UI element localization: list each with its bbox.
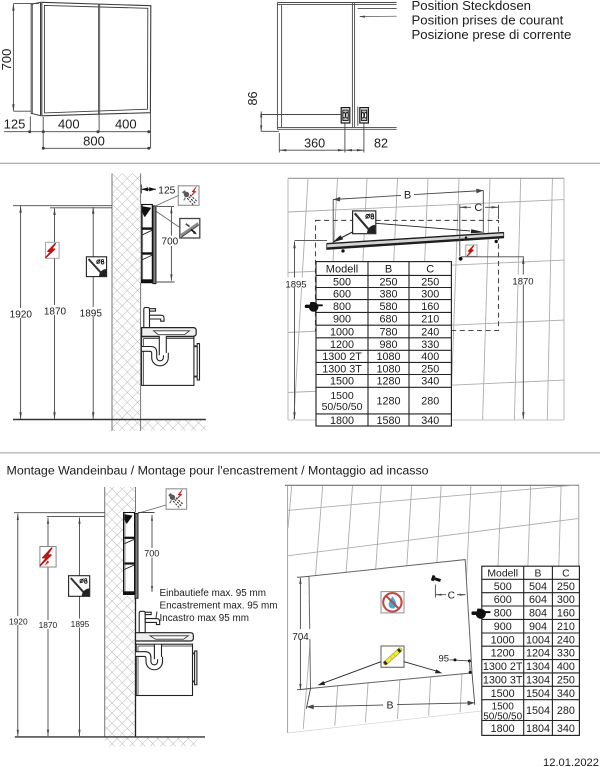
svg-text:400: 400 xyxy=(557,661,575,673)
svg-text:1920: 1920 xyxy=(10,310,33,321)
svg-text:B: B xyxy=(535,568,542,579)
svg-text:380: 380 xyxy=(379,288,397,300)
svg-text:904: 904 xyxy=(529,621,547,633)
svg-text:704: 704 xyxy=(292,632,309,643)
svg-text:504: 504 xyxy=(529,581,547,593)
svg-text:1300 3T: 1300 3T xyxy=(322,363,362,375)
svg-text:1895: 1895 xyxy=(285,279,306,290)
svg-text:Modell: Modell xyxy=(487,568,518,579)
svg-text:1870: 1870 xyxy=(44,306,67,317)
svg-text:280: 280 xyxy=(421,395,439,407)
svg-text:250: 250 xyxy=(557,674,575,686)
svg-text:1870: 1870 xyxy=(512,276,533,287)
svg-text:1895: 1895 xyxy=(80,309,103,320)
svg-text:900: 900 xyxy=(494,621,512,633)
svg-text:125: 125 xyxy=(4,117,26,132)
svg-text:580: 580 xyxy=(379,301,397,313)
svg-text:Incastro max 95 mm: Incastro max 95 mm xyxy=(160,613,249,624)
svg-text:1200: 1200 xyxy=(330,339,354,351)
svg-text:Encastrement max. 95 mm: Encastrement max. 95 mm xyxy=(160,600,278,611)
svg-text:250: 250 xyxy=(421,363,439,375)
svg-text:300: 300 xyxy=(421,288,439,300)
svg-text:1004: 1004 xyxy=(526,634,550,646)
svg-text:1895: 1895 xyxy=(71,619,90,629)
svg-text:800: 800 xyxy=(333,301,351,313)
svg-text:B: B xyxy=(385,263,392,275)
svg-text:600: 600 xyxy=(333,288,351,300)
svg-text:B: B xyxy=(404,190,411,202)
svg-text:700: 700 xyxy=(162,237,179,248)
svg-text:800: 800 xyxy=(494,608,512,620)
svg-text:700: 700 xyxy=(0,49,14,71)
svg-text:280: 280 xyxy=(557,705,575,717)
svg-text:1800: 1800 xyxy=(330,415,354,427)
svg-text:1504: 1504 xyxy=(526,688,550,700)
svg-text:360: 360 xyxy=(304,137,325,151)
svg-text:1920: 1920 xyxy=(9,617,28,627)
svg-text:Position prises de courant: Position prises de courant xyxy=(412,13,564,28)
svg-text:250: 250 xyxy=(557,581,575,593)
svg-text:400: 400 xyxy=(115,117,137,132)
svg-text:Posizione prese di corrente: Posizione prese di corrente xyxy=(412,27,572,42)
svg-text:1280: 1280 xyxy=(376,395,400,407)
svg-text:250: 250 xyxy=(421,276,439,288)
svg-text:1500: 1500 xyxy=(491,688,515,700)
svg-text:50/50/50: 50/50/50 xyxy=(322,401,363,413)
svg-text:1200: 1200 xyxy=(491,648,515,660)
svg-text:1000: 1000 xyxy=(491,634,515,646)
svg-text:1300 3T: 1300 3T xyxy=(483,674,523,686)
svg-text:1800: 1800 xyxy=(491,723,515,735)
svg-text:340: 340 xyxy=(421,376,439,388)
svg-text:340: 340 xyxy=(557,723,575,735)
svg-text:1204: 1204 xyxy=(526,648,550,660)
svg-text:1580: 1580 xyxy=(376,415,400,427)
svg-text:1500: 1500 xyxy=(330,376,354,388)
svg-text:240: 240 xyxy=(421,326,439,338)
svg-text:Modell: Modell xyxy=(326,263,358,275)
svg-text:1300 2T: 1300 2T xyxy=(483,661,523,673)
svg-text:1304: 1304 xyxy=(526,661,550,673)
svg-text:1304: 1304 xyxy=(526,674,550,686)
svg-text:330: 330 xyxy=(557,648,575,660)
svg-text:125: 125 xyxy=(158,185,175,196)
svg-text:1804: 1804 xyxy=(526,723,550,735)
svg-text:300: 300 xyxy=(557,594,575,606)
svg-text:500: 500 xyxy=(494,581,512,593)
svg-text:86: 86 xyxy=(246,91,260,105)
svg-text:340: 340 xyxy=(421,415,439,427)
svg-text:1300 2T: 1300 2T xyxy=(322,351,362,363)
svg-text:800: 800 xyxy=(83,133,105,148)
svg-text:400: 400 xyxy=(421,351,439,363)
svg-text:50/50/50: 50/50/50 xyxy=(483,711,522,722)
svg-text:900: 900 xyxy=(333,314,351,326)
svg-text:Einbautiefe max. 95 mm: Einbautiefe max. 95 mm xyxy=(160,588,266,599)
svg-text:980: 980 xyxy=(379,339,397,351)
svg-text:160: 160 xyxy=(557,608,575,620)
svg-text:1000: 1000 xyxy=(330,326,354,338)
svg-text:500: 500 xyxy=(333,276,351,288)
svg-text:C: C xyxy=(562,568,570,579)
svg-text:1280: 1280 xyxy=(376,376,400,388)
svg-text:82: 82 xyxy=(374,136,388,150)
svg-text:Position Steckdosen: Position Steckdosen xyxy=(412,0,532,13)
svg-text:C: C xyxy=(448,590,455,601)
svg-text:330: 330 xyxy=(421,339,439,351)
svg-text:240: 240 xyxy=(557,634,575,646)
svg-text:12.01.2022: 12.01.2022 xyxy=(543,757,599,767)
svg-text:680: 680 xyxy=(379,314,397,326)
svg-text:600: 600 xyxy=(494,594,512,606)
svg-text:1870: 1870 xyxy=(39,620,58,630)
svg-text:250: 250 xyxy=(379,276,397,288)
svg-text:1504: 1504 xyxy=(526,705,550,717)
svg-text:340: 340 xyxy=(557,688,575,700)
svg-text:1080: 1080 xyxy=(376,351,400,363)
svg-text:C: C xyxy=(426,263,434,275)
svg-text:160: 160 xyxy=(421,301,439,313)
svg-text:604: 604 xyxy=(529,594,547,606)
svg-text:700: 700 xyxy=(144,549,159,559)
svg-text:804: 804 xyxy=(529,608,547,620)
svg-text:400: 400 xyxy=(58,117,80,132)
svg-text:C: C xyxy=(474,202,482,214)
svg-text:210: 210 xyxy=(421,314,439,326)
svg-text:780: 780 xyxy=(379,326,397,338)
svg-text:210: 210 xyxy=(557,621,575,633)
svg-text:95: 95 xyxy=(439,653,450,664)
svg-text:B: B xyxy=(386,700,393,712)
svg-text:Montage Wandeinbau / Montage p: Montage Wandeinbau / Montage pour l'enca… xyxy=(7,464,429,478)
svg-text:1080: 1080 xyxy=(376,363,400,375)
